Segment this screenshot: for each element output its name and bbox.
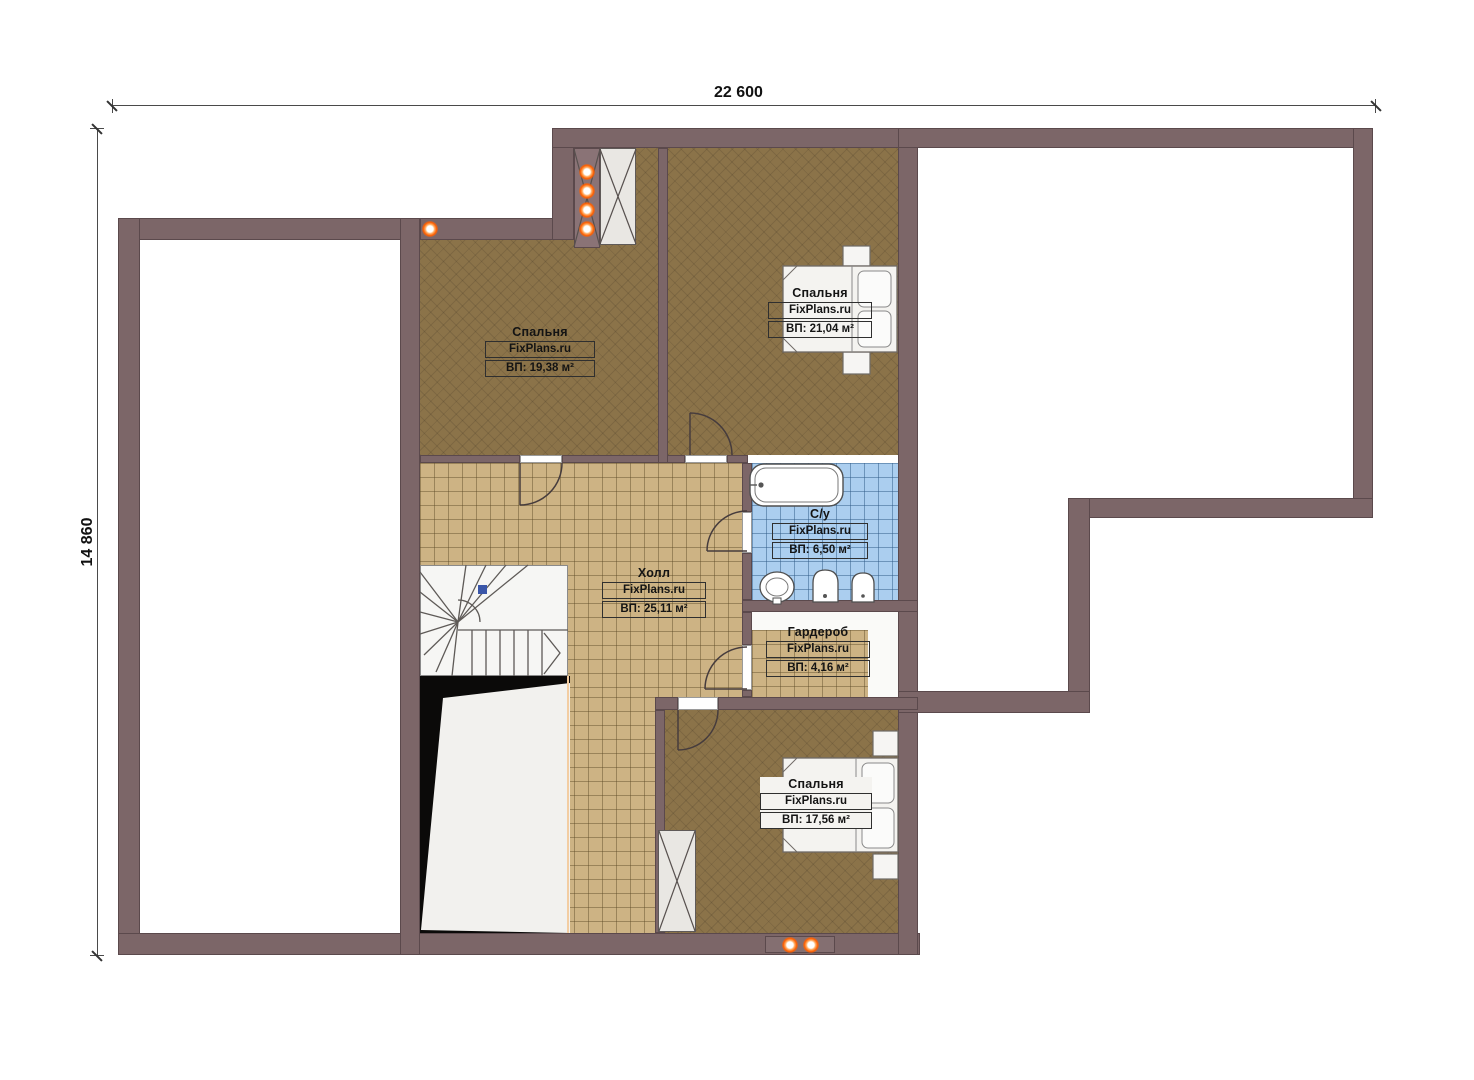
brand-label: FixPlans.ru — [766, 641, 870, 658]
brand-label: FixPlans.ru — [485, 341, 595, 358]
room-name: Гардероб — [766, 625, 870, 639]
floor-plan: 22 600 14 860 — [0, 0, 1474, 1080]
ceiling-light-icon — [579, 221, 595, 237]
ceiling-light-icon — [579, 164, 595, 180]
light-panel — [765, 936, 835, 953]
door-opening-bedroom3 — [678, 697, 718, 710]
ceiling-light-icon — [782, 937, 798, 953]
room-area: ВП: 21,04 м² — [768, 321, 872, 338]
wall-whiteroom-top — [898, 128, 1373, 148]
dimension-tick — [1370, 100, 1381, 111]
room-label-wardrobe: Гардероб FixPlans.ru ВП: 4,16 м² — [766, 625, 870, 677]
room-name: Спальня — [768, 286, 872, 300]
brand-label: FixPlans.ru — [602, 582, 706, 599]
room-label-hall: Холл FixPlans.ru ВП: 25,11 м² — [602, 566, 706, 618]
ceiling-light-icon — [579, 202, 595, 218]
brand-label: FixPlans.ru — [772, 523, 868, 540]
wall-bath-bottom — [742, 600, 918, 612]
room-label-bathroom: С/у FixPlans.ru ВП: 6,50 м² — [772, 507, 868, 559]
room-area: ВП: 17,56 м² — [760, 812, 872, 829]
room-name: Спальня — [485, 325, 595, 339]
dimension-width-label: 22 600 — [714, 84, 763, 102]
dimension-line-left — [97, 128, 98, 955]
staircase-area — [420, 565, 568, 676]
wall-bath-left-a — [742, 463, 752, 512]
wall-bedroom3-top-b — [718, 697, 918, 710]
wall-central-top — [552, 128, 920, 148]
wall-bath-left-b — [742, 553, 752, 600]
wall-annex-top — [118, 218, 420, 240]
room-label-bedroom3: Спальня FixPlans.ru ВП: 17,56 м² — [760, 777, 872, 829]
wall-wardrobe-left-a — [742, 612, 752, 645]
wall-annex-left — [118, 218, 140, 955]
room-label-bedroom2: Спальня FixPlans.ru ВП: 21,04 м² — [768, 286, 872, 338]
room-area: ВП: 6,50 м² — [772, 542, 868, 559]
room-area: ВП: 19,38 м² — [485, 360, 595, 377]
wall-hall-top-c — [727, 455, 748, 463]
room-area: ВП: 4,16 м² — [766, 660, 870, 677]
door-opening-bedroom2 — [685, 455, 727, 463]
wall-whiteroom-right — [1353, 128, 1373, 518]
stair-void — [420, 676, 570, 933]
room-label-bedroom1: Спальня FixPlans.ru ВП: 19,38 м² — [485, 325, 595, 377]
wall-whiteroom-bottom-right — [1068, 498, 1373, 518]
door-opening-bedroom1 — [520, 455, 562, 463]
ventilation-shaft-icon — [600, 148, 636, 245]
brand-label: FixPlans.ru — [760, 793, 872, 810]
room-area: ВП: 25,11 м² — [602, 601, 706, 618]
door-opening-bathroom — [742, 512, 752, 553]
wall-whiteroom-step — [1068, 498, 1090, 713]
door-opening-wardrobe — [742, 645, 752, 690]
dimension-line-top — [112, 105, 1376, 106]
ceiling-light-icon — [803, 937, 819, 953]
room-name: С/у — [772, 507, 868, 521]
ceiling-light-icon — [579, 183, 595, 199]
brand-label: FixPlans.ru — [768, 302, 872, 319]
wall-bedroom-divider — [658, 148, 668, 463]
wall-central-left — [400, 218, 420, 955]
dimension-height-label: 14 860 — [79, 512, 97, 572]
wall-whiteroom-bottom-inner — [898, 691, 1090, 713]
ceiling-light-icon — [422, 221, 438, 237]
ventilation-shaft-icon — [658, 830, 696, 932]
room-name: Спальня — [760, 777, 872, 791]
wall-wardrobe-left-b — [742, 690, 752, 697]
wall-hall-top-a — [420, 455, 520, 463]
wall-right-tall — [898, 128, 918, 955]
wall-bedroom3-top-a — [655, 697, 678, 710]
room-name: Холл — [602, 566, 706, 580]
